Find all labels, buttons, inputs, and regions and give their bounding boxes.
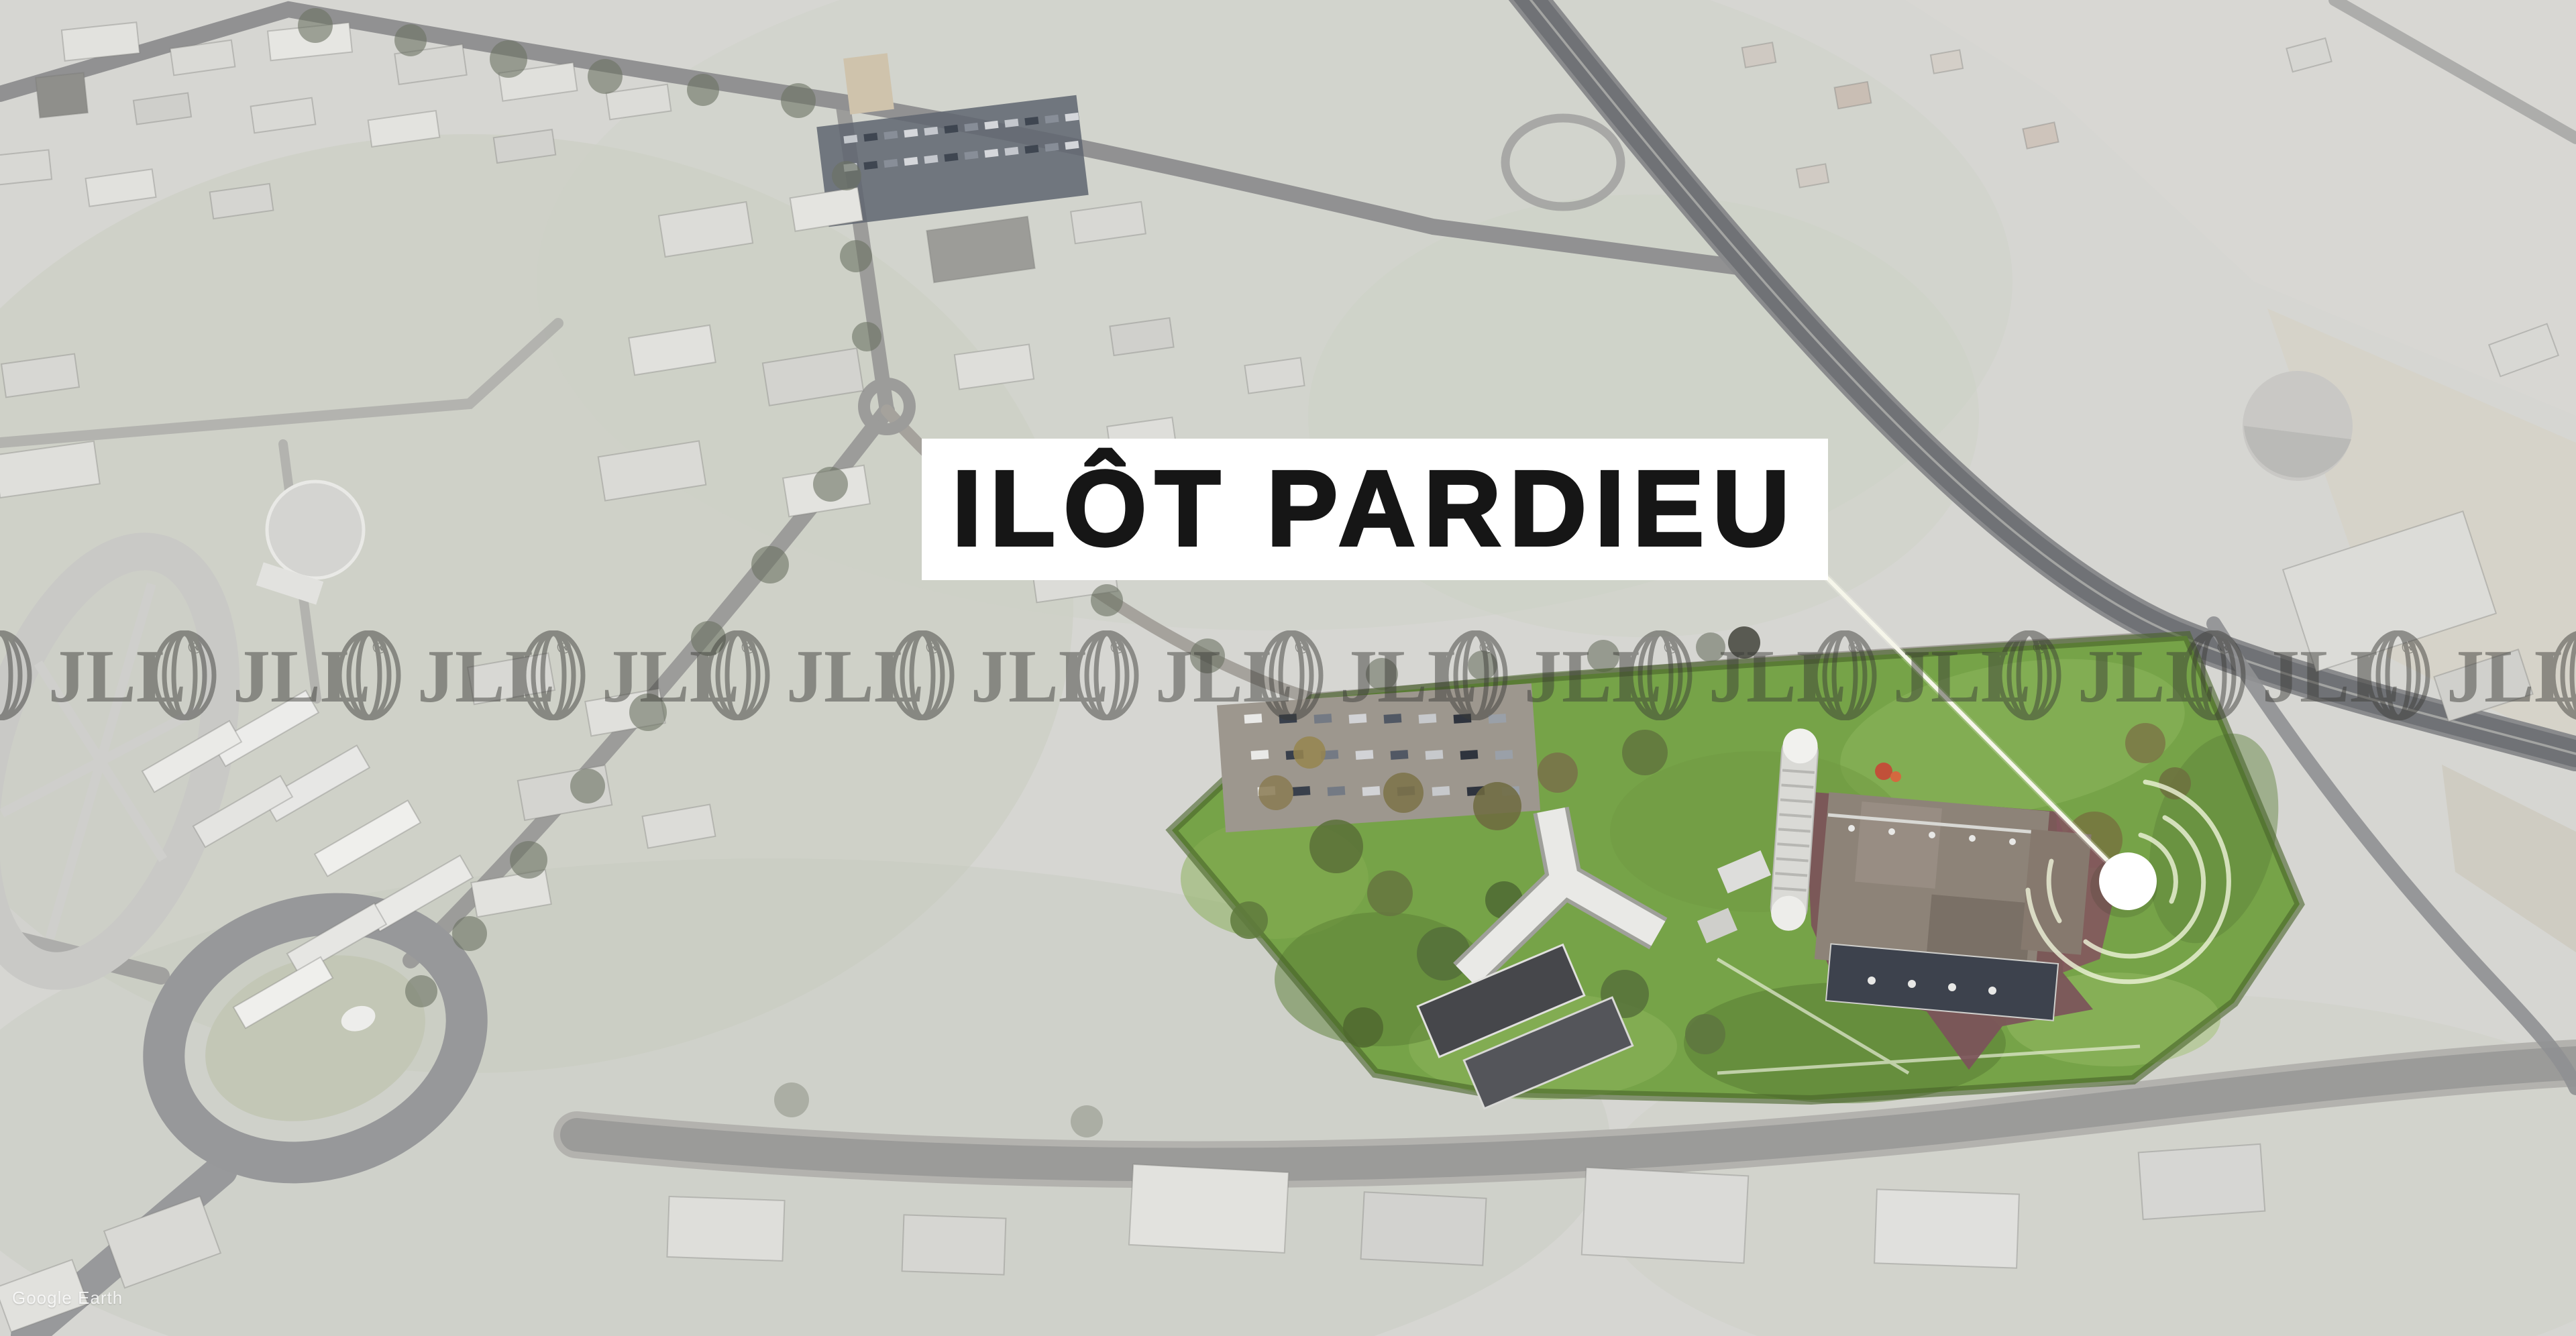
tree: [774, 1082, 809, 1117]
site-title: ILÔT PARDIEU: [952, 447, 1798, 570]
helipad: [267, 482, 364, 578]
tree: [394, 24, 427, 56]
tree: [691, 621, 726, 656]
red-rooftop-object: [1875, 763, 1892, 780]
parked-car: [1489, 714, 1507, 724]
parked-car: [1314, 714, 1332, 724]
parked-car: [1328, 786, 1346, 796]
parked-car: [1419, 714, 1437, 724]
parked-car: [1495, 750, 1513, 760]
tree: [570, 769, 605, 803]
tree: [751, 546, 789, 583]
building: [1874, 1189, 2019, 1268]
tree: [1343, 1007, 1383, 1048]
parked-car: [1384, 714, 1402, 724]
tree: [1538, 753, 1578, 793]
aerial-site-plan: JLL®JLL®JLL®JLL®JLL®JLL®JLL®JLL®JLL®JLL®…: [0, 0, 2576, 1336]
site-title-box: ILÔT PARDIEU: [922, 439, 1828, 580]
tree: [1622, 730, 1668, 775]
tree: [1293, 736, 1326, 769]
tree: [1190, 638, 1225, 673]
tree: [405, 975, 437, 1007]
parked-car: [1244, 714, 1263, 724]
tree: [1258, 775, 1293, 810]
building: [1129, 1164, 1289, 1253]
tree: [2125, 723, 2165, 763]
parked-car: [1454, 714, 1472, 724]
building: [0, 150, 52, 185]
parked-car: [1293, 786, 1311, 796]
tree: [1685, 1014, 1725, 1054]
aerial-photo: [0, 0, 2576, 1336]
building: [1361, 1192, 1487, 1265]
building: [667, 1196, 784, 1261]
parked-car: [1279, 714, 1297, 724]
parked-car: [1391, 750, 1409, 760]
tree: [1473, 782, 1521, 830]
tree: [813, 467, 848, 502]
tree: [1383, 773, 1424, 813]
tree: [298, 8, 333, 43]
tree: [1230, 901, 1268, 939]
round-building: [2243, 371, 2353, 481]
building: [1582, 1168, 1748, 1263]
tree: [1587, 640, 1619, 672]
map-attribution: Google Earth: [12, 1288, 123, 1309]
tree: [490, 40, 527, 78]
tree: [452, 916, 487, 951]
building: [902, 1215, 1006, 1274]
bridge: [843, 53, 894, 114]
parked-car: [1362, 786, 1381, 796]
tree: [1309, 820, 1363, 873]
parked-car: [1460, 750, 1479, 760]
tree: [832, 161, 861, 190]
tree: [1071, 1105, 1103, 1137]
tree: [852, 322, 881, 351]
parked-car: [1251, 750, 1269, 760]
tree: [1091, 584, 1123, 616]
parked-car: [1349, 714, 1367, 724]
tree: [781, 83, 816, 118]
tree: [1367, 871, 1413, 916]
parked-car: [1432, 786, 1450, 796]
tree: [1366, 658, 1398, 690]
tree: [840, 240, 872, 272]
tree: [510, 841, 547, 879]
tree: [629, 693, 667, 731]
tree: [588, 59, 623, 94]
tree: [1468, 651, 1497, 680]
building: [36, 72, 88, 117]
tree: [687, 74, 719, 106]
parked-car: [1356, 750, 1374, 760]
parked-car: [1426, 750, 1444, 760]
tree: [1417, 927, 1470, 981]
tree: [1696, 632, 1725, 662]
building: [2139, 1144, 2265, 1219]
marker-dot: [2099, 852, 2157, 910]
tree: [1728, 626, 1760, 659]
